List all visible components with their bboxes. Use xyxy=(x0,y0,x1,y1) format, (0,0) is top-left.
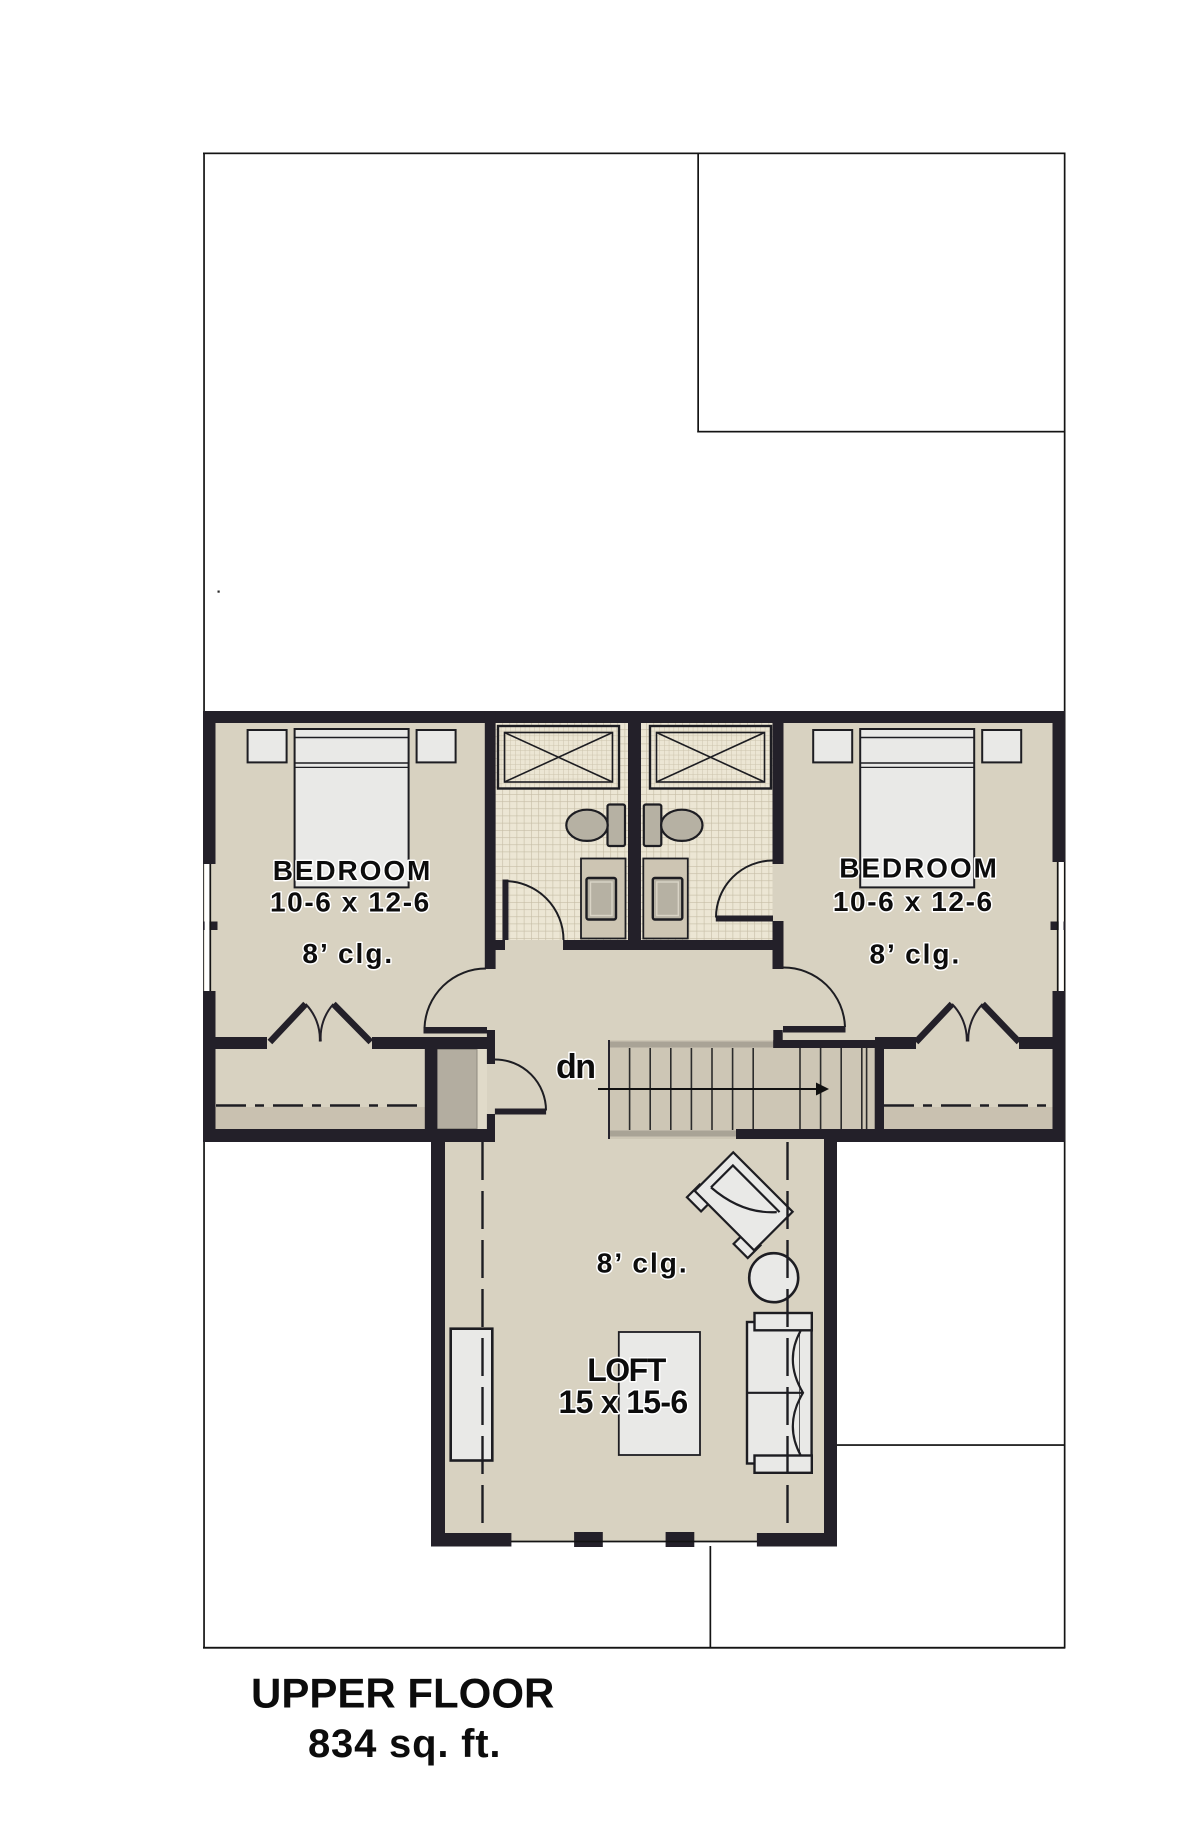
svg-text:8’ clg.: 8’ clg. xyxy=(597,1248,689,1279)
svg-text:10-6 x 12-6: 10-6 x 12-6 xyxy=(833,886,994,917)
svg-text:BEDROOM: BEDROOM xyxy=(839,853,999,884)
svg-text:BEDROOM: BEDROOM xyxy=(273,855,433,886)
svg-text:LOFT: LOFT xyxy=(587,1352,666,1388)
svg-text:UPPER FLOOR: UPPER FLOOR xyxy=(251,1670,554,1717)
svg-text:dn: dn xyxy=(556,1048,595,1086)
svg-text:8’ clg.: 8’ clg. xyxy=(302,938,394,969)
svg-text:834 sq. ft.: 834 sq. ft. xyxy=(308,1722,501,1766)
svg-text:10-6 x 12-6: 10-6 x 12-6 xyxy=(270,887,431,918)
svg-text:15 x 15-6: 15 x 15-6 xyxy=(559,1384,688,1420)
svg-text:8’ clg.: 8’ clg. xyxy=(869,938,961,969)
